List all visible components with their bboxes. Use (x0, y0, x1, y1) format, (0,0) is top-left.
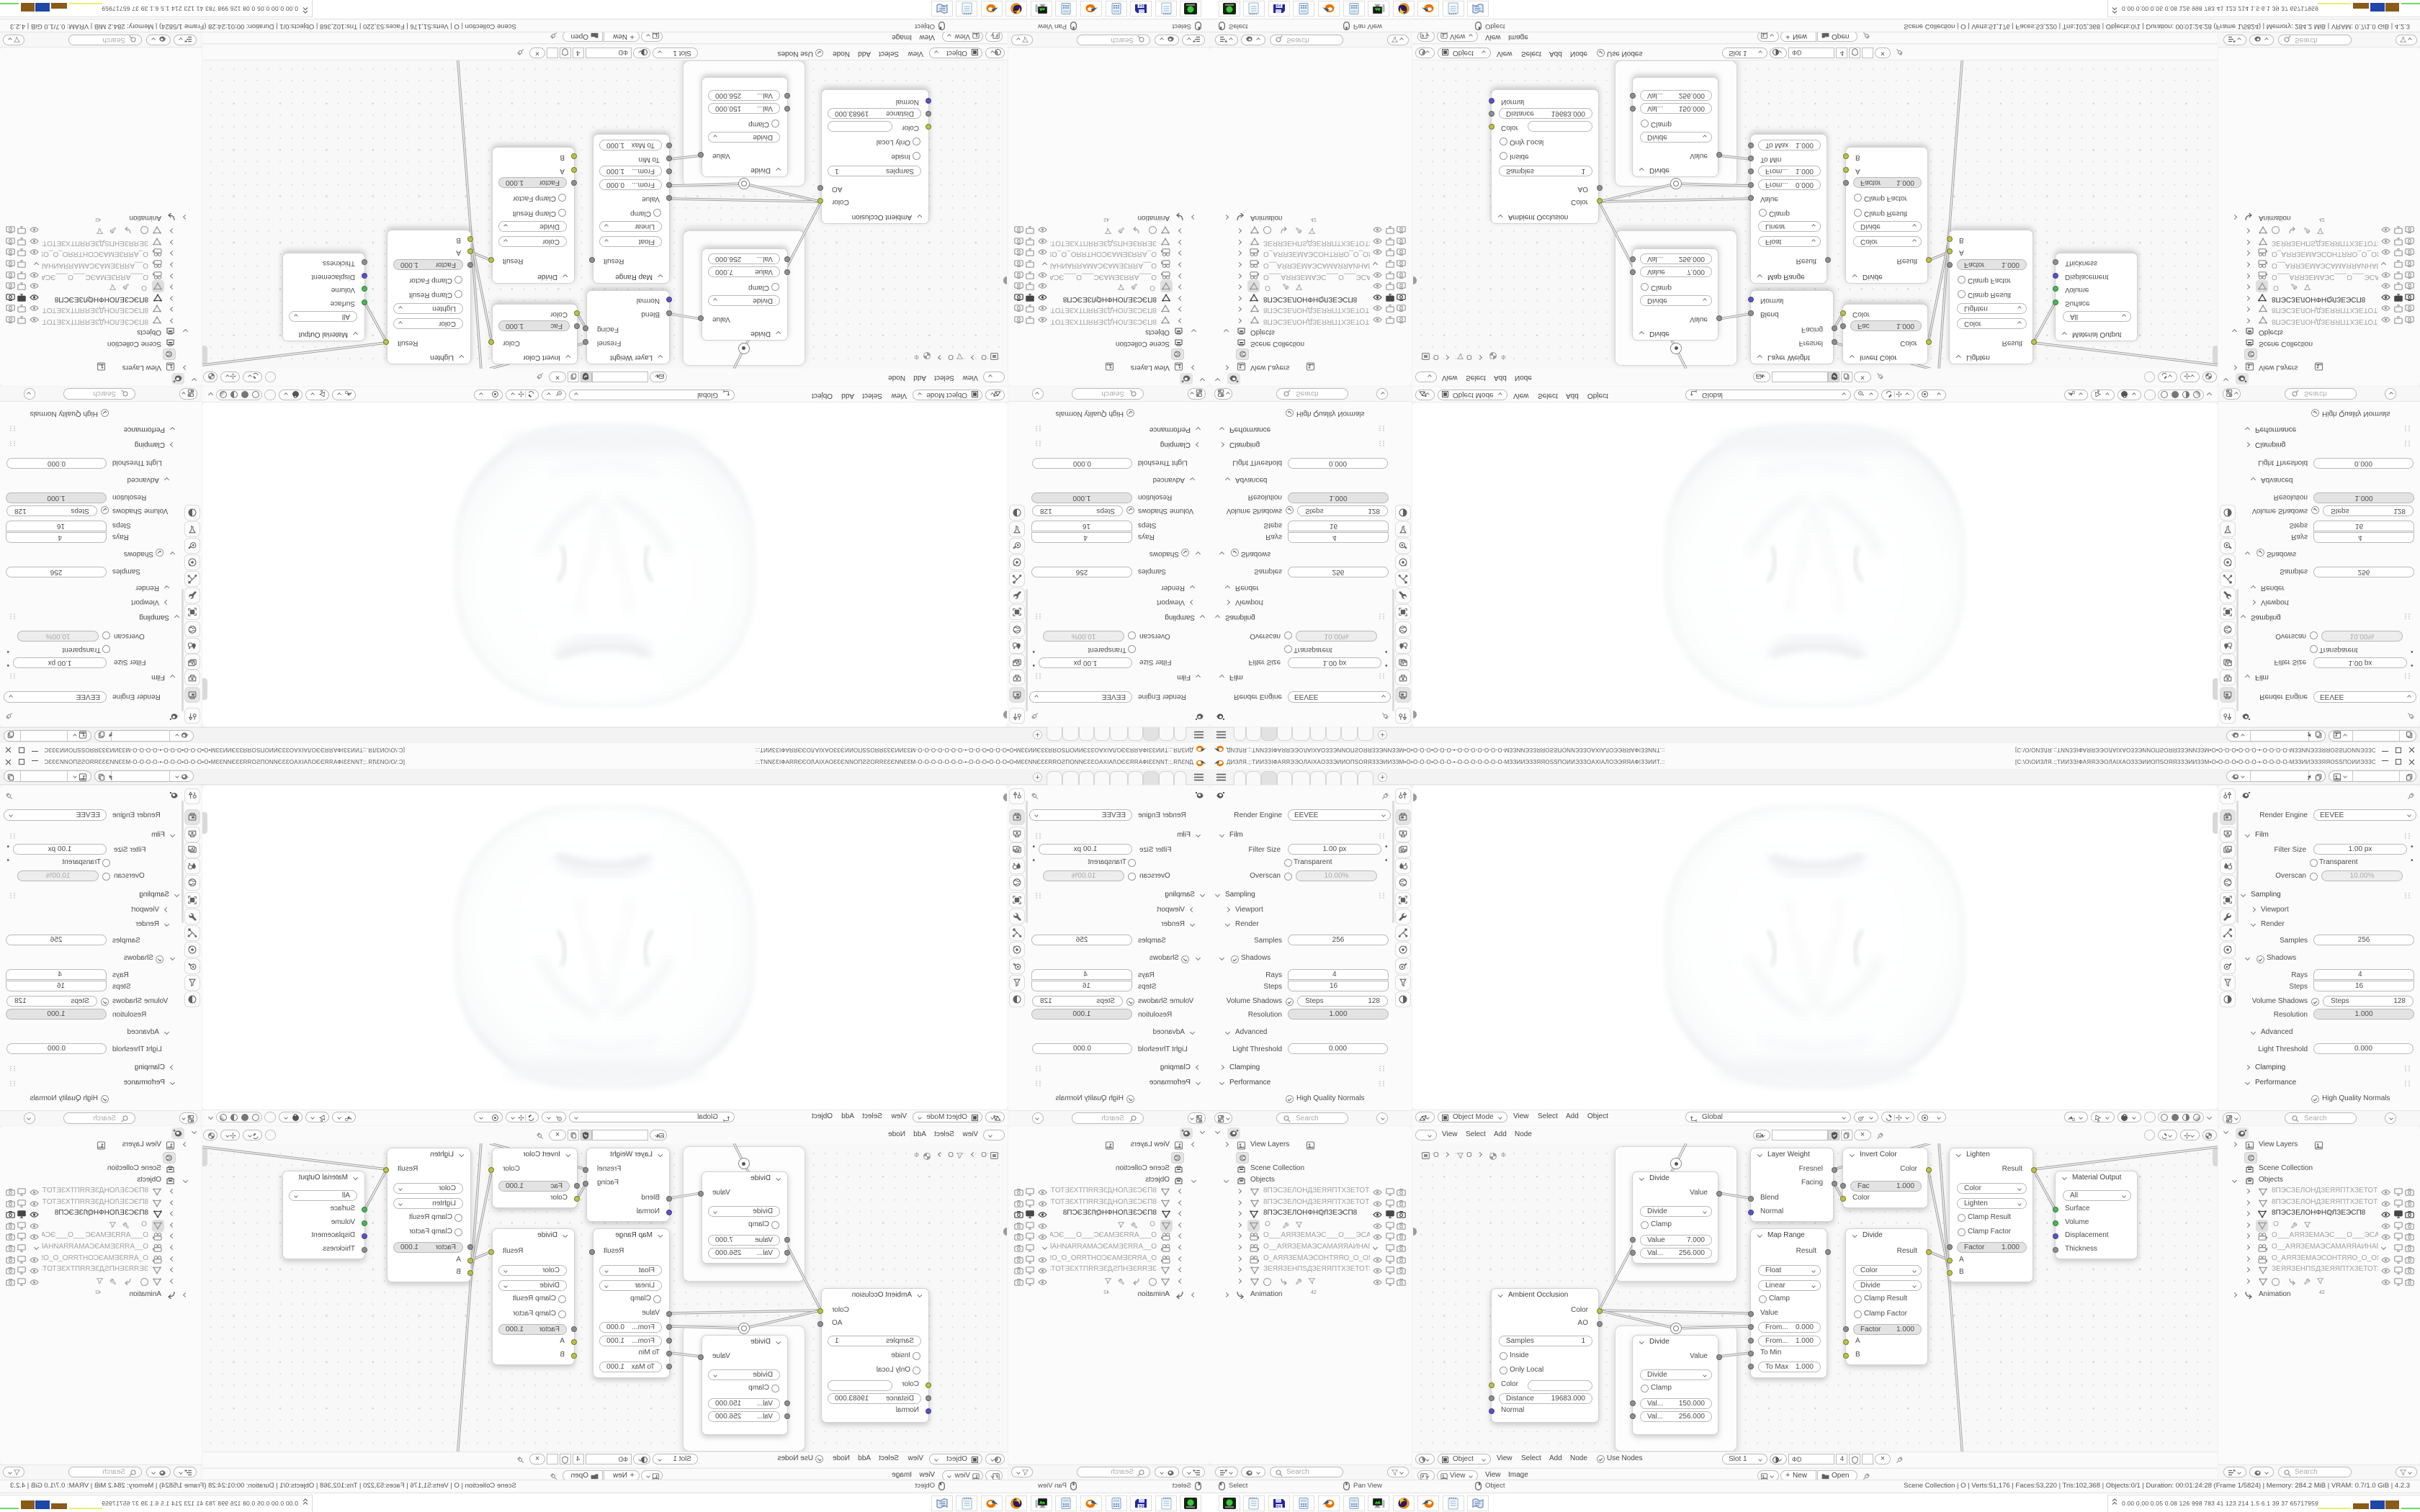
svg-text:64: 64 (1276, 1505, 1281, 1509)
svg-text:64: 64 (1139, 3, 1144, 7)
svg-text:64: 64 (1276, 3, 1281, 7)
svg-text:64: 64 (1139, 1505, 1144, 1509)
